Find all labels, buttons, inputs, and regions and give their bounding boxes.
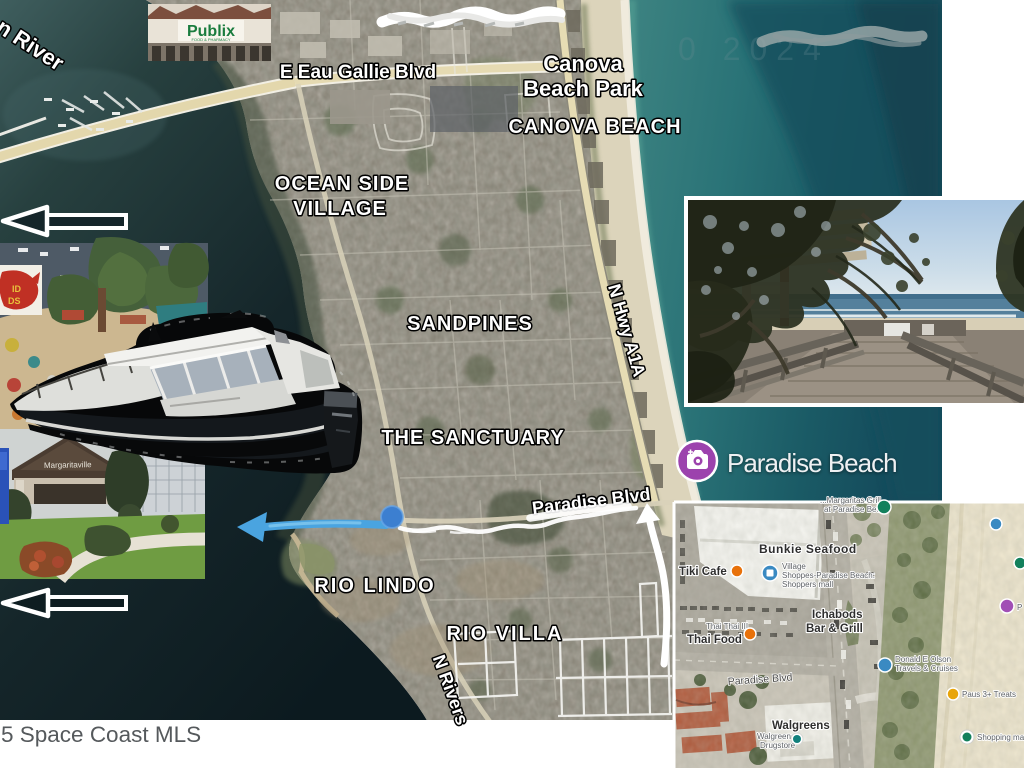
svg-text:Village: Village	[782, 562, 806, 571]
svg-text:Margaritaville: Margaritaville	[44, 460, 92, 470]
svg-text:VILLAGE: VILLAGE	[293, 198, 387, 220]
svg-text:Shoppers mall: Shoppers mall	[782, 580, 833, 589]
svg-text:ID: ID	[12, 284, 22, 294]
svg-text:Donald E Olson: Donald E Olson	[895, 655, 951, 664]
svg-text:E Eau Gallie Blvd: E Eau Gallie Blvd	[280, 62, 436, 83]
svg-text:Bar & Grill: Bar & Grill	[806, 623, 863, 635]
svg-text:Thai Food: Thai Food	[687, 634, 742, 646]
svg-text:Beach Park: Beach Park	[523, 76, 644, 101]
svg-text:RIO VILLA: RIO VILLA	[447, 623, 564, 645]
svg-text:...Margaritas Grill: ...Margaritas Grill	[820, 496, 881, 505]
svg-text:SANDPINES: SANDPINES	[407, 313, 533, 335]
svg-text:Travels & Cruises: Travels & Cruises	[895, 664, 958, 673]
svg-text:Walgreens: Walgreens	[757, 732, 795, 741]
svg-text:CANOVA BEACH: CANOVA BEACH	[508, 116, 681, 138]
svg-text:Paus 3+ Treats: Paus 3+ Treats	[962, 690, 1016, 699]
svg-text:Paradise Beach: Paradise Beach	[727, 448, 897, 478]
svg-text:Thai Thai III: Thai Thai III	[706, 622, 748, 631]
svg-text:Drugstore: Drugstore	[760, 741, 796, 750]
svg-text:Bunkie Seafood: Bunkie Seafood	[759, 542, 857, 556]
svg-text:Canova: Canova	[543, 51, 623, 76]
svg-text:Tiki Cafe: Tiki Cafe	[679, 566, 727, 578]
svg-text:RIO LINDO: RIO LINDO	[314, 575, 435, 597]
svg-text:Shopping mall: Shopping mall	[977, 733, 1024, 742]
svg-text:Shoppes-Paradise Beach:: Shoppes-Paradise Beach:	[782, 571, 875, 580]
svg-text:FOOD & PHARMACY: FOOD & PHARMACY	[191, 37, 230, 42]
svg-text:Ichabods: Ichabods	[812, 609, 862, 621]
svg-text:THE SANCTUARY: THE SANCTUARY	[381, 427, 564, 449]
svg-text:OCEAN SIDE: OCEAN SIDE	[275, 173, 409, 195]
svg-text:P: P	[1017, 603, 1022, 612]
svg-text:Walgreens: Walgreens	[772, 720, 830, 732]
svg-text:DS: DS	[8, 296, 21, 306]
svg-text:5 Space Coast MLS: 5 Space Coast MLS	[1, 722, 201, 747]
